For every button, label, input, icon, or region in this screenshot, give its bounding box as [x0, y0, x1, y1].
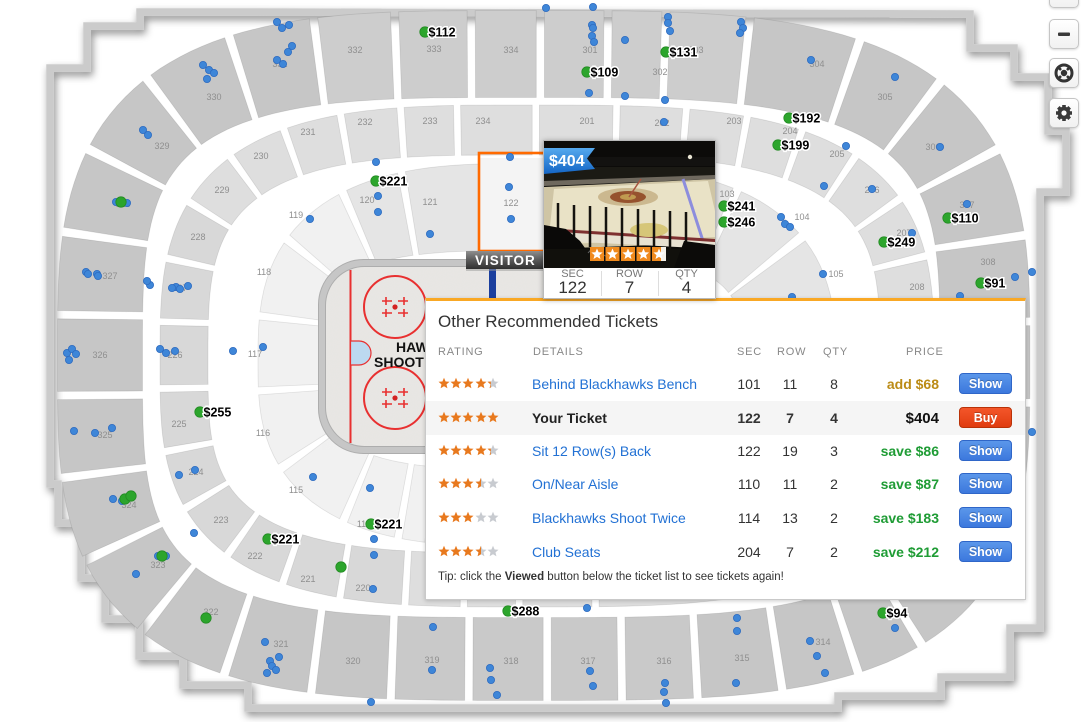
svg-text:117: 117 — [248, 349, 262, 359]
svg-text:120: 120 — [359, 195, 374, 205]
svg-text:VISITOR: VISITOR — [475, 253, 536, 268]
svg-text:323: 323 — [150, 560, 165, 570]
svg-text:229: 229 — [214, 185, 229, 195]
svg-text:320: 320 — [345, 656, 360, 666]
svg-text:228: 228 — [190, 232, 205, 242]
svg-text:$112: $112 — [429, 26, 456, 40]
svg-text:$288: $288 — [512, 605, 540, 619]
svg-text:$91: $91 — [985, 277, 1006, 291]
svg-text:$249: $249 — [888, 236, 916, 250]
svg-text:$246: $246 — [728, 216, 756, 230]
svg-text:201: 201 — [579, 116, 594, 126]
svg-text:121: 121 — [422, 197, 437, 207]
svg-text:316: 316 — [656, 656, 671, 666]
svg-text:$192: $192 — [793, 112, 821, 126]
svg-text:232: 232 — [357, 117, 372, 127]
svg-text:321: 321 — [273, 639, 288, 649]
svg-text:326: 326 — [92, 350, 107, 360]
svg-text:221: 221 — [300, 574, 315, 584]
svg-text:223: 223 — [213, 515, 228, 525]
svg-text:305: 305 — [877, 92, 892, 102]
svg-text:330: 330 — [206, 92, 221, 102]
svg-text:118: 118 — [257, 267, 271, 277]
svg-text:208: 208 — [909, 282, 924, 292]
svg-text:231: 231 — [300, 127, 315, 137]
svg-text:333: 333 — [426, 44, 441, 54]
svg-text:116: 116 — [256, 428, 270, 438]
svg-text:$221: $221 — [380, 175, 408, 189]
svg-text:334: 334 — [503, 45, 518, 55]
svg-text:$221: $221 — [272, 533, 300, 547]
svg-text:$255: $255 — [204, 406, 232, 420]
svg-text:318: 318 — [503, 656, 518, 666]
svg-text:204: 204 — [782, 126, 797, 136]
svg-text:308: 308 — [980, 257, 995, 267]
svg-text:105: 105 — [828, 269, 843, 279]
svg-text:315: 315 — [734, 653, 749, 663]
svg-text:317: 317 — [580, 656, 595, 666]
svg-text:225: 225 — [171, 419, 186, 429]
svg-text:222: 222 — [247, 551, 262, 561]
svg-text:115: 115 — [289, 485, 303, 495]
svg-text:233: 233 — [422, 116, 437, 126]
svg-text:$241: $241 — [728, 200, 756, 214]
svg-text:$404: $404 — [549, 153, 585, 170]
svg-text:$94: $94 — [887, 607, 908, 621]
svg-text:230: 230 — [253, 151, 268, 161]
svg-text:234: 234 — [475, 116, 490, 126]
svg-text:319: 319 — [424, 655, 439, 665]
svg-text:104: 104 — [794, 212, 809, 222]
svg-text:$199: $199 — [782, 139, 810, 153]
svg-text:$109: $109 — [591, 66, 619, 80]
svg-text:329: 329 — [154, 141, 169, 151]
svg-text:327: 327 — [102, 271, 117, 281]
svg-text:302: 302 — [652, 67, 667, 77]
svg-text:314: 314 — [815, 637, 830, 647]
svg-text:119: 119 — [289, 210, 303, 220]
svg-text:301: 301 — [582, 45, 597, 55]
svg-text:332: 332 — [347, 45, 362, 55]
svg-text:220: 220 — [355, 583, 370, 593]
svg-text:$110: $110 — [952, 212, 979, 226]
svg-text:205: 205 — [829, 149, 844, 159]
svg-text:$221: $221 — [375, 518, 403, 532]
svg-text:122: 122 — [503, 198, 518, 208]
svg-text:103: 103 — [719, 189, 734, 199]
svg-text:$131: $131 — [670, 46, 698, 60]
svg-text:203: 203 — [726, 116, 741, 126]
